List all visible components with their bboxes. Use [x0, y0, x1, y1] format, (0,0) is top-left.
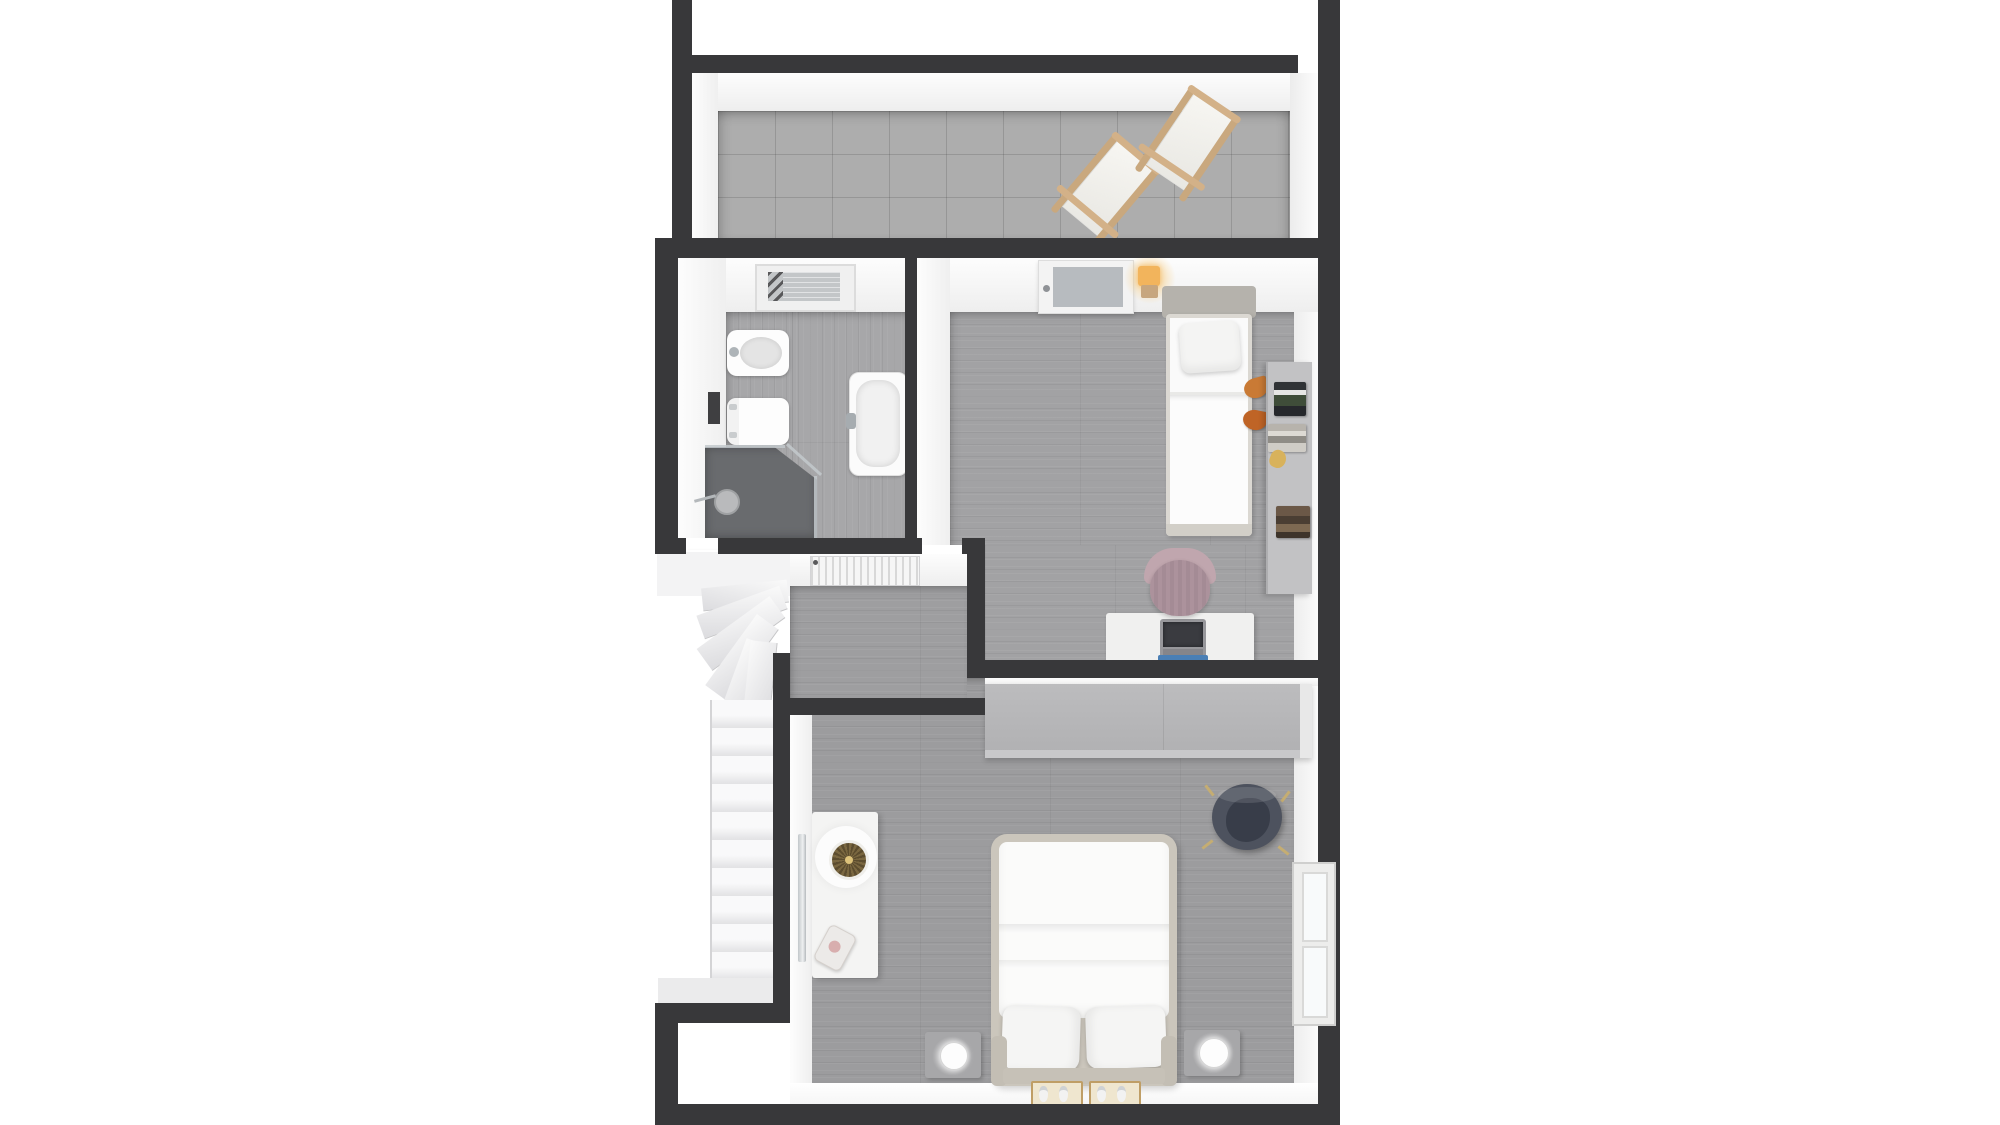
skylight-dark-slats — [768, 272, 783, 301]
terrace-face-left — [692, 73, 718, 238]
stair-tread — [712, 952, 773, 981]
laptop-screen — [1163, 622, 1203, 647]
stair-tread — [712, 868, 773, 897]
skylight-window — [755, 264, 856, 312]
bidet-tap — [729, 347, 739, 357]
stair-tread — [712, 784, 773, 813]
round-decor-plate — [829, 840, 869, 880]
wall-terrace-top — [692, 55, 1298, 73]
terrace-door — [1038, 260, 1134, 314]
stair-tread — [712, 840, 773, 869]
hall-floor — [790, 586, 967, 698]
slipper — [1117, 1086, 1126, 1102]
wardrobe-seam — [1163, 684, 1164, 750]
wall-niche — [708, 392, 720, 424]
armchair-highlight — [1218, 787, 1276, 803]
single-bed-duvet — [1170, 392, 1248, 533]
wall-terrace-left — [672, 0, 692, 256]
wall-bottom-left-v — [655, 1003, 678, 1115]
slipper-mat — [1089, 1081, 1141, 1106]
toilet-hinge — [729, 404, 737, 410]
stair-tread — [712, 812, 773, 841]
wall-hall-north-a — [655, 538, 686, 554]
stair-tread — [712, 756, 773, 785]
wall-bathroom-left — [655, 238, 678, 538]
wall-stair-side — [773, 653, 790, 1023]
window — [1292, 862, 1336, 1026]
bed-fold-line — [999, 960, 1169, 968]
stair-bottom-landing — [658, 978, 788, 1005]
wardrobe-front-lip — [985, 750, 1312, 758]
terrace-face-right — [1290, 73, 1318, 238]
wall-hall-north-b — [718, 538, 922, 554]
double-bed — [991, 834, 1177, 1086]
stair-tread — [712, 700, 773, 729]
table-lamp — [1199, 1038, 1229, 1068]
radiator-valve — [813, 560, 818, 565]
radiator — [810, 556, 920, 586]
wall-kids-master — [985, 660, 1318, 678]
table-lamp — [940, 1042, 968, 1070]
pillow — [1001, 1005, 1081, 1072]
staircase — [655, 550, 790, 1025]
wall-hall-south — [783, 698, 985, 715]
toilet — [727, 398, 789, 445]
slipper — [1059, 1086, 1068, 1102]
bidet — [727, 330, 789, 376]
window-pane — [1302, 872, 1328, 942]
book-stack — [1274, 382, 1306, 416]
window-pane — [1302, 946, 1328, 1018]
toilet-hinge — [729, 432, 737, 438]
stair-flight-edge — [710, 700, 712, 980]
shower-head — [714, 489, 740, 515]
desk-chair — [1144, 548, 1216, 618]
stair-tread — [712, 728, 773, 757]
terrace-door-panel — [1053, 267, 1123, 307]
laptop — [1160, 619, 1206, 659]
decor-plate-center — [845, 856, 853, 864]
book-stack — [1268, 424, 1306, 452]
single-bed — [1166, 314, 1252, 536]
shower-glass-top — [705, 445, 785, 448]
shower-glass-side — [814, 476, 817, 538]
wall-hall-east — [967, 551, 985, 678]
bathtub — [849, 372, 908, 476]
slipper — [1097, 1086, 1106, 1102]
wall-bathroom-kids — [905, 258, 917, 550]
bed-fold-line — [999, 924, 1169, 933]
leaning-mirror — [798, 834, 806, 962]
wall-main-band — [655, 238, 1318, 258]
slipper-mat — [1031, 1081, 1083, 1106]
kids-face-west — [917, 258, 950, 545]
book-stack — [1276, 506, 1310, 538]
door-handle — [1043, 285, 1050, 292]
pillow — [1085, 1005, 1167, 1070]
built-in-wardrobe — [985, 684, 1312, 758]
floor-plan-render — [0, 0, 2000, 1125]
wall-lamp — [1138, 266, 1160, 286]
pillow — [1178, 320, 1241, 374]
desk-chair-seat — [1150, 560, 1210, 616]
bathtub-basin — [856, 380, 900, 467]
wall-bottom — [655, 1104, 1340, 1125]
armchair — [1212, 782, 1286, 856]
slipper — [1039, 1086, 1048, 1102]
bidet-bowl — [740, 337, 782, 369]
wall-lamp-base — [1141, 285, 1158, 298]
stair-tread — [712, 896, 773, 925]
single-bed-foot-lip — [1166, 524, 1252, 536]
stair-tread — [712, 924, 773, 953]
stool-cushion — [826, 939, 842, 955]
wardrobe-end-cap — [1300, 684, 1312, 758]
bathtub-faucet — [846, 413, 856, 429]
